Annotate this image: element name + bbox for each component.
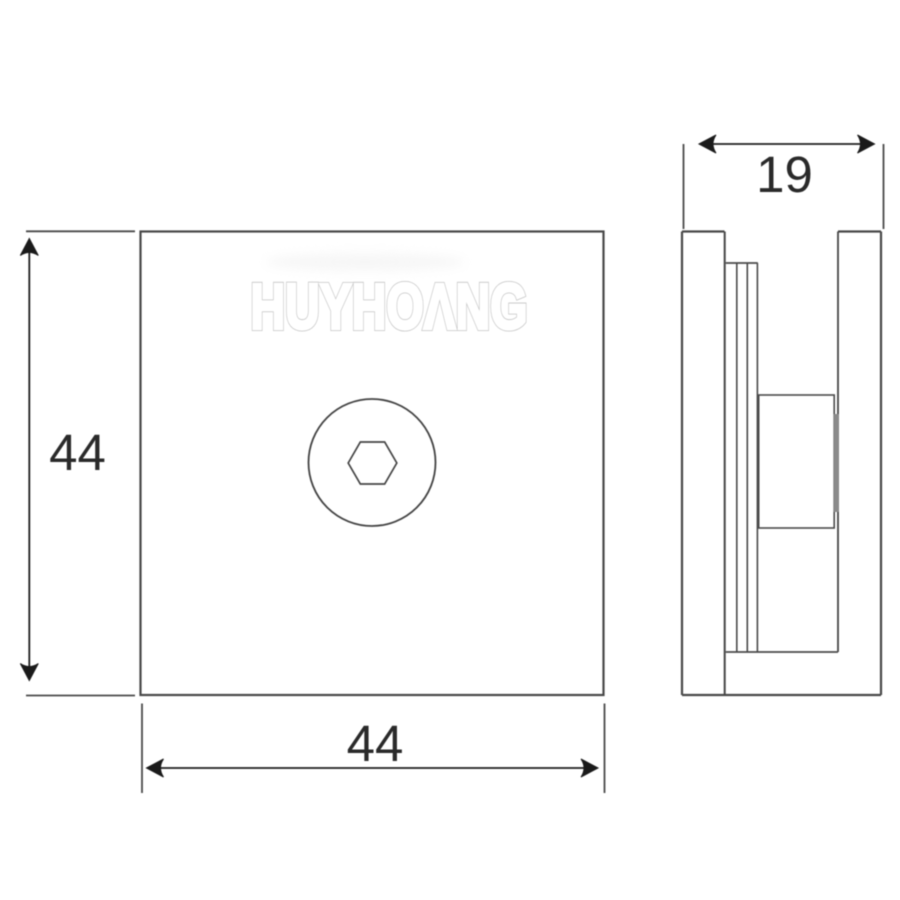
svg-text:19: 19 (756, 146, 813, 203)
svg-text:HUYHOΛNG: HUYHOΛNG (251, 270, 528, 342)
svg-text:44: 44 (347, 715, 404, 772)
svg-text:44: 44 (49, 424, 106, 481)
